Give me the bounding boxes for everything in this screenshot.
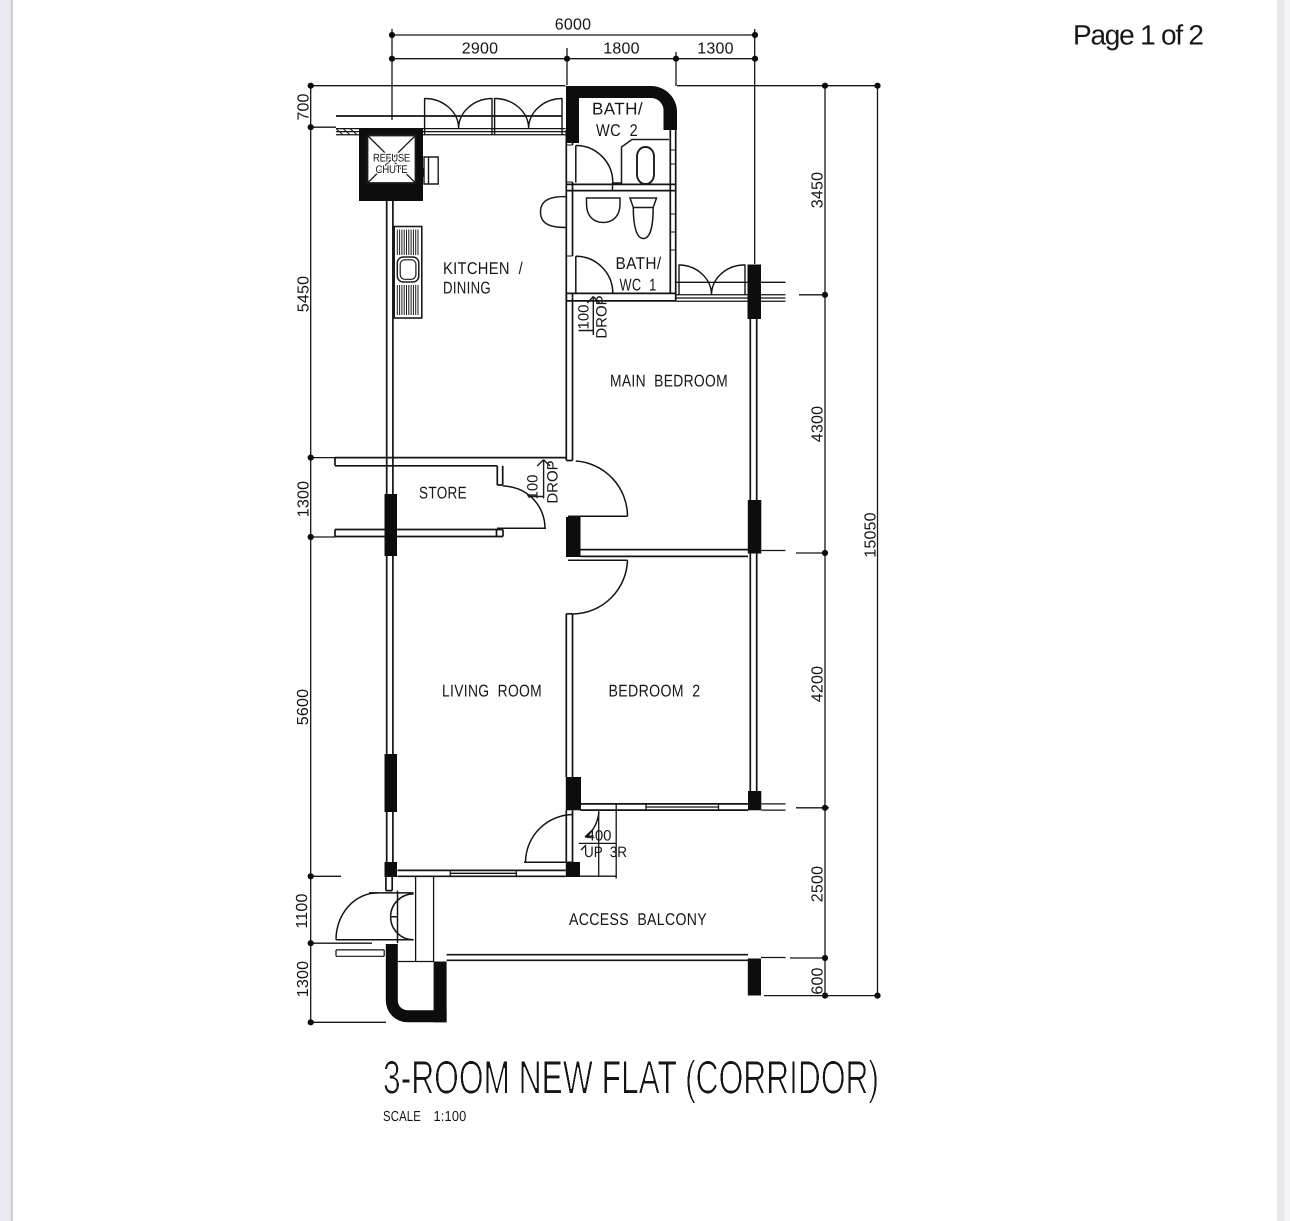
svg-text:WC 2: WC 2 xyxy=(596,121,638,140)
svg-text:3-ROOM NEW FLAT (CORRIDOR): 3-ROOM NEW FLAT (CORRIDOR) xyxy=(383,1051,879,1104)
svg-text:4300: 4300 xyxy=(810,406,827,442)
svg-text:400: 400 xyxy=(586,828,611,845)
svg-text:LIVING ROOM: LIVING ROOM xyxy=(442,682,542,701)
svg-text:KITCHEN /: KITCHEN / xyxy=(443,259,523,278)
svg-text:15050: 15050 xyxy=(863,512,880,558)
svg-text:BEDROOM 2: BEDROOM 2 xyxy=(609,682,701,701)
svg-text:100: 100 xyxy=(525,474,542,499)
svg-text:1300: 1300 xyxy=(295,961,312,997)
svg-text:UP 3R: UP 3R xyxy=(584,844,627,861)
svg-text:BATH/: BATH/ xyxy=(616,254,662,273)
svg-text:DINING: DINING xyxy=(443,279,491,298)
svg-text:STORE: STORE xyxy=(419,484,467,503)
svg-text:1300: 1300 xyxy=(697,41,733,58)
svg-text:600: 600 xyxy=(810,967,827,994)
svg-text:1800: 1800 xyxy=(603,41,639,58)
svg-text:4200: 4200 xyxy=(810,666,827,702)
svg-text:3450: 3450 xyxy=(810,172,827,208)
svg-text:1:100: 1:100 xyxy=(434,1109,467,1125)
svg-text:1300: 1300 xyxy=(296,481,313,517)
svg-text:5450: 5450 xyxy=(296,276,313,312)
svg-text:BATH/: BATH/ xyxy=(592,100,643,119)
svg-text:ACCESS BALCONY: ACCESS BALCONY xyxy=(569,910,707,929)
svg-text:1100: 1100 xyxy=(294,893,311,928)
svg-text:Page 1 of 2: Page 1 of 2 xyxy=(1073,20,1204,51)
svg-text:SCALE: SCALE xyxy=(383,1109,421,1125)
svg-text:2500: 2500 xyxy=(810,866,827,902)
svg-text:WC 1: WC 1 xyxy=(620,276,657,295)
svg-text:MAIN BEDROOM: MAIN BEDROOM xyxy=(610,372,728,391)
svg-text:DROP: DROP xyxy=(594,295,611,338)
svg-text:CHUTE: CHUTE xyxy=(376,164,408,176)
svg-text:5600: 5600 xyxy=(295,689,312,725)
svg-text:2900: 2900 xyxy=(462,41,498,58)
svg-text:REFUSE: REFUSE xyxy=(373,153,410,165)
svg-text:700: 700 xyxy=(296,93,313,120)
svg-text:100: 100 xyxy=(576,304,593,329)
svg-text:6000: 6000 xyxy=(555,17,591,34)
svg-text:DROP: DROP xyxy=(545,460,562,503)
